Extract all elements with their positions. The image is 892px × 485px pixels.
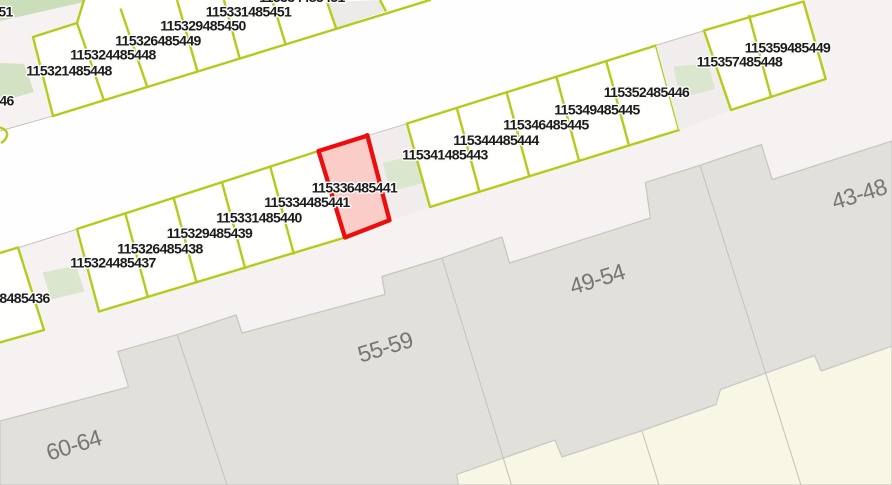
svg-text:115336485441: 115336485441 — [312, 180, 398, 196]
svg-text:115334485451: 115334485451 — [259, 0, 345, 5]
svg-text:115331485440: 115331485440 — [216, 210, 302, 226]
svg-text:115312485446: 115312485446 — [0, 93, 15, 109]
svg-text:115334485441: 115334485441 — [264, 194, 350, 210]
svg-text:115329485450: 115329485450 — [160, 18, 246, 34]
svg-text:115318485436: 115318485436 — [0, 290, 51, 306]
svg-text:115359485449: 115359485449 — [745, 40, 831, 56]
svg-text:115346485445: 115346485445 — [503, 117, 589, 133]
svg-text:115352485446: 115352485446 — [604, 84, 690, 100]
svg-text:115331485451: 115331485451 — [206, 4, 292, 20]
svg-text:115341485443: 115341485443 — [402, 147, 488, 163]
svg-text:115357485448: 115357485448 — [697, 54, 783, 70]
svg-text:115324485448: 115324485448 — [70, 47, 156, 63]
svg-text:115329485439: 115329485439 — [167, 225, 253, 241]
svg-text:115344485444: 115344485444 — [453, 132, 539, 148]
svg-text:115326485438: 115326485438 — [117, 241, 203, 257]
svg-text:115324485437: 115324485437 — [70, 255, 156, 271]
svg-text:115321485448: 115321485448 — [26, 63, 112, 79]
svg-text:115349485445: 115349485445 — [554, 102, 640, 118]
svg-text:115326485451: 115326485451 — [0, 4, 14, 20]
svg-text:115326485449: 115326485449 — [115, 33, 201, 49]
